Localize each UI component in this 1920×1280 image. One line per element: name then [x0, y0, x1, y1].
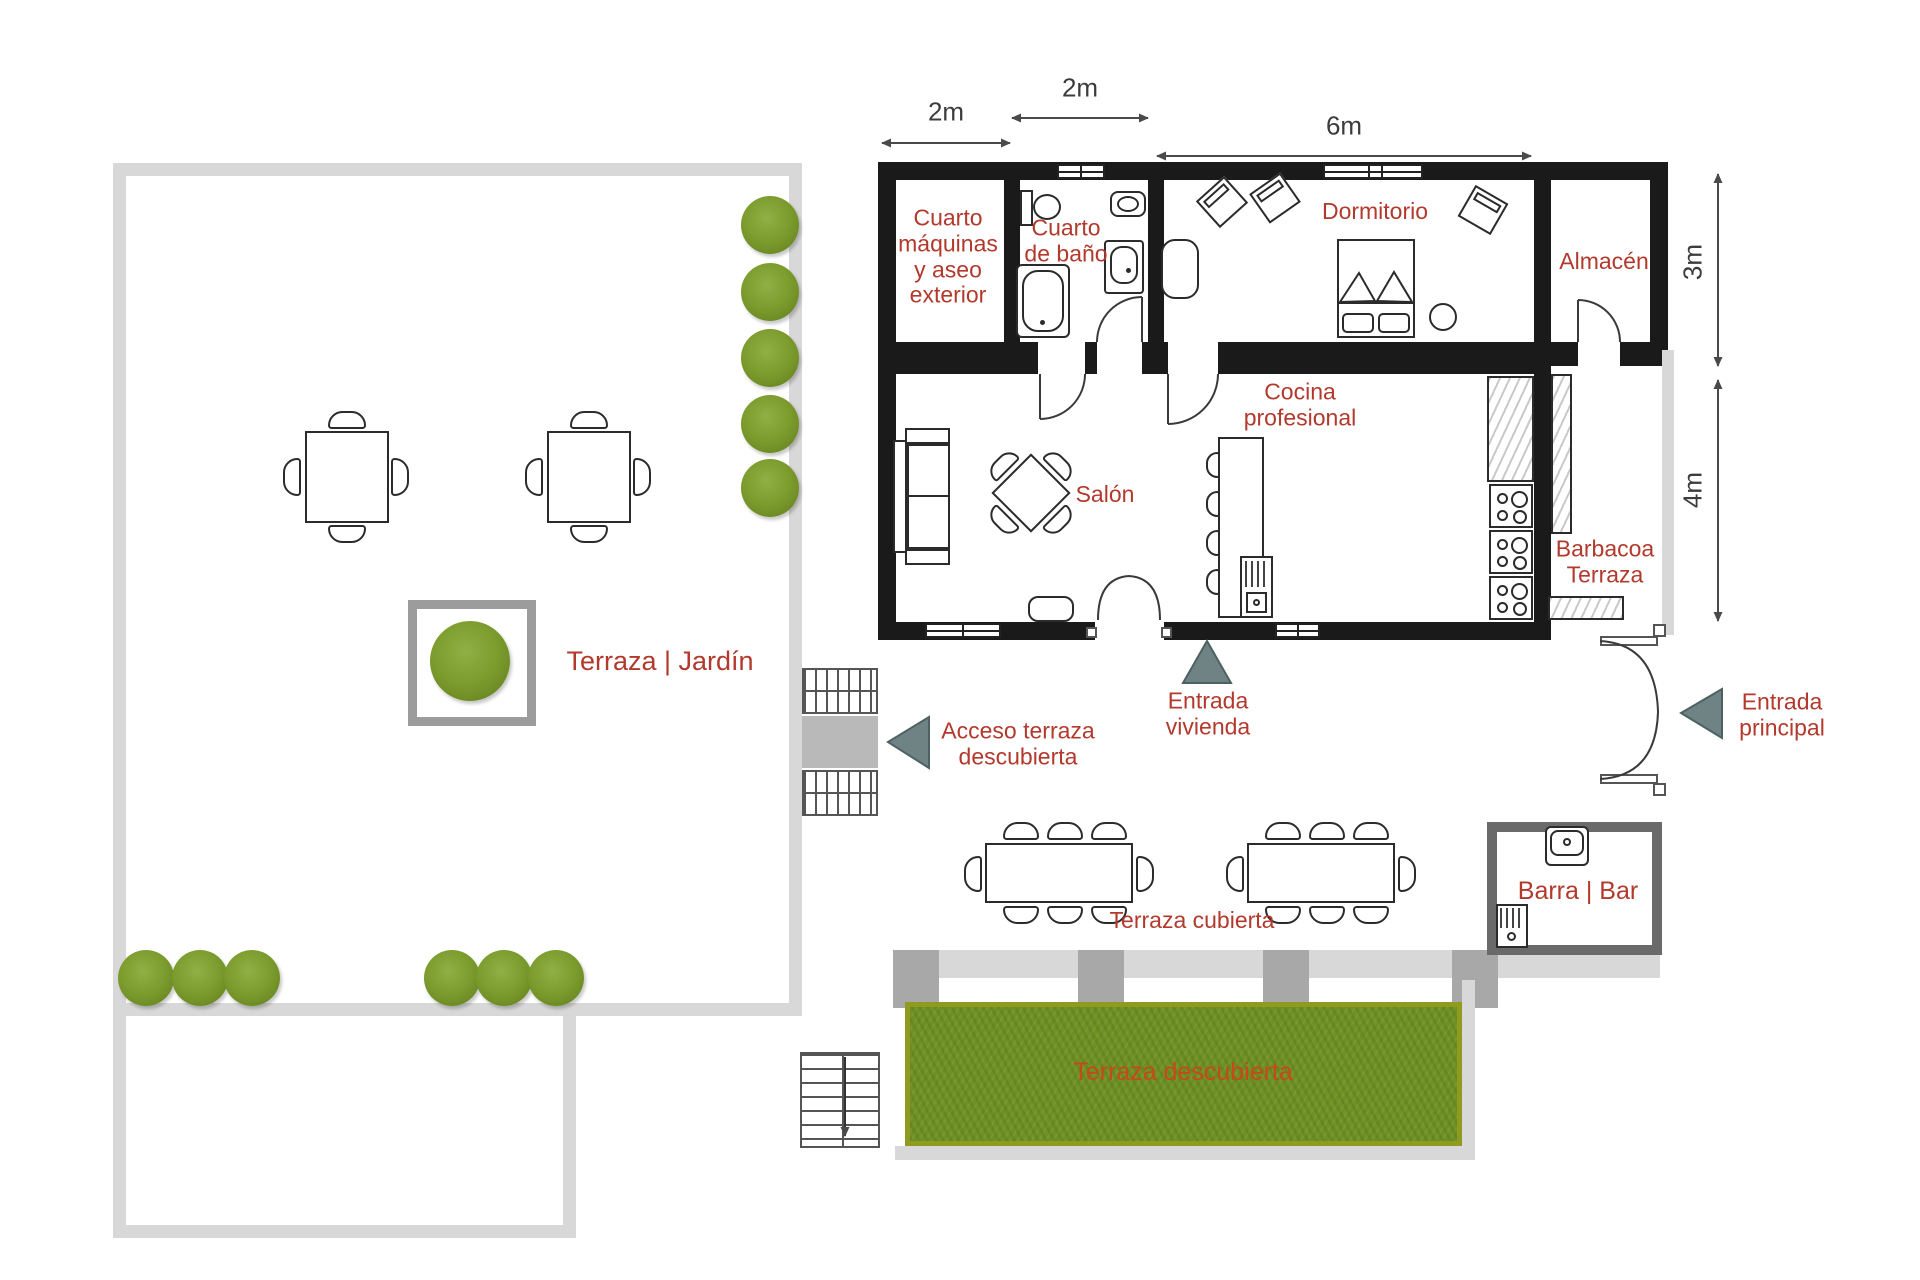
chair	[1226, 856, 1244, 892]
bedside-table	[1429, 303, 1457, 331]
window	[925, 623, 1001, 638]
window	[1057, 164, 1105, 179]
chair	[570, 411, 608, 429]
dim-label-6m: 6m	[1326, 111, 1362, 142]
chair	[1003, 822, 1039, 840]
dim-label-4m: 4m	[1678, 472, 1709, 508]
planter-tree	[430, 621, 510, 701]
door-arc	[1168, 374, 1218, 424]
door-pivot	[1653, 624, 1666, 637]
chair	[1003, 906, 1039, 924]
label-bbq: Barbacoa Terraza	[1556, 536, 1654, 588]
chair	[525, 458, 543, 496]
pouf	[1028, 596, 1074, 622]
pillar	[893, 950, 939, 1008]
terrace-surround-right	[1462, 980, 1475, 1158]
bush	[741, 263, 799, 321]
bush	[528, 950, 584, 1006]
window	[1275, 623, 1320, 638]
wall-inner-h4	[1218, 342, 1534, 374]
pillar	[1263, 950, 1309, 1008]
chair	[1309, 906, 1345, 924]
bush	[118, 950, 174, 1006]
dishwasher	[1240, 556, 1273, 618]
stairs-down	[800, 1052, 880, 1148]
double-door-main	[1600, 641, 1658, 779]
bush	[172, 950, 228, 1006]
stairs-landing	[802, 716, 878, 768]
garden-lower-extension	[113, 1016, 576, 1238]
floor-plan: Cuarto máquinas y aseo exterior Cuarto d…	[0, 0, 1920, 1280]
kitchen-counter	[1487, 376, 1534, 482]
chair	[1091, 822, 1127, 840]
wall-inner-h3	[1142, 342, 1168, 374]
label-bedroom: Dormitorio	[1322, 199, 1428, 225]
stove	[1489, 576, 1533, 620]
pillar	[1078, 950, 1124, 1008]
bbq-counter-vertical	[1551, 374, 1572, 534]
chair	[1265, 822, 1301, 840]
door-arc	[1097, 297, 1142, 342]
bar-appliance	[1496, 904, 1528, 948]
wall-bottom-right	[1164, 622, 1534, 640]
bar-sink-drain	[1563, 838, 1571, 846]
chair	[964, 856, 982, 892]
label-bar: Barra | Bar	[1518, 877, 1638, 905]
pillow	[1342, 313, 1374, 333]
stove	[1489, 484, 1533, 528]
armchair	[1249, 172, 1301, 223]
bush	[741, 196, 799, 254]
door-arc	[1578, 300, 1620, 342]
door-pivot	[1653, 783, 1666, 796]
wall-storage-bottom-l	[1551, 342, 1578, 366]
label-garden: Terraza | Jardín	[566, 646, 753, 676]
wall-storage-bottom-r	[1620, 342, 1668, 366]
bbq-counter-horizontal	[1548, 596, 1624, 620]
double-door-home	[1098, 576, 1160, 620]
main-entrance-icon	[1681, 689, 1722, 738]
bush	[741, 459, 799, 517]
label-machine-room: Cuarto máquinas y aseo exterior	[898, 206, 998, 309]
bush	[424, 950, 480, 1006]
stairs-upper-flight	[802, 668, 878, 714]
main-door-leaf	[1600, 636, 1658, 646]
bush	[741, 395, 799, 453]
armchair	[1458, 185, 1509, 235]
sink-basin	[1110, 246, 1138, 284]
door-jamb	[1086, 627, 1097, 638]
sink-drain	[1126, 268, 1131, 273]
window	[1323, 164, 1423, 179]
chair	[283, 458, 301, 496]
label-bathroom: Cuarto de baño	[1024, 215, 1107, 267]
wall-bedroom-storage	[1534, 180, 1551, 640]
label-kitchen: Cocina profesional	[1244, 379, 1357, 431]
main-door-leaf	[1600, 774, 1658, 784]
label-main-entrance: Entrada principal	[1739, 689, 1825, 741]
garden-table	[547, 431, 631, 523]
door-arc	[1040, 374, 1085, 419]
bush	[476, 950, 532, 1006]
chair	[1047, 906, 1083, 924]
label-terrace-access: Acceso terraza descubierta	[941, 718, 1094, 770]
wall-left	[878, 162, 896, 640]
dim-label-3m: 3m	[1678, 244, 1709, 280]
home-entrance-icon	[1183, 641, 1231, 683]
stool	[1206, 569, 1220, 595]
chair	[1398, 856, 1416, 892]
chair	[1136, 856, 1154, 892]
stove	[1489, 530, 1533, 574]
dim-label-2m-b: 2m	[1062, 73, 1098, 104]
chair	[1353, 822, 1389, 840]
pillar	[1452, 950, 1498, 1008]
label-home-entrance: Entrada vivienda	[1166, 688, 1250, 740]
stairs-lower-flight	[802, 770, 878, 816]
terrace-access-icon	[888, 717, 929, 768]
bush	[741, 329, 799, 387]
armchair	[1196, 176, 1248, 228]
rug	[1161, 239, 1199, 299]
pillow	[1378, 313, 1410, 333]
chair	[1047, 822, 1083, 840]
chair	[1309, 822, 1345, 840]
wall-inner-h1	[878, 342, 1038, 374]
chair	[1353, 906, 1389, 924]
door-jamb	[1161, 627, 1172, 638]
label-living-room: Salón	[1076, 482, 1135, 508]
label-covered-terrace: Terraza cubierta	[1110, 908, 1275, 934]
wall-right-top	[1650, 162, 1668, 354]
garden-table	[305, 431, 389, 523]
stool	[1206, 452, 1220, 478]
stool	[1206, 491, 1220, 517]
stool	[1206, 530, 1220, 556]
label-open-terrace: Terraza descubierta	[1073, 1058, 1293, 1086]
sofa	[893, 428, 950, 565]
toilet-bowl	[1117, 196, 1139, 212]
bbq-outer-wall	[1662, 350, 1674, 635]
chair	[328, 411, 366, 429]
terrace-surround-bottom	[895, 1146, 1475, 1160]
wall-inner-h2	[1085, 342, 1097, 374]
dim-label-2m-a: 2m	[928, 97, 964, 128]
garden-boundary	[113, 163, 802, 1016]
terrace-table	[1247, 843, 1395, 903]
label-storage: Almacén	[1559, 249, 1648, 275]
terrace-table	[985, 843, 1133, 903]
bathtub-drain	[1040, 320, 1045, 325]
bush	[224, 950, 280, 1006]
